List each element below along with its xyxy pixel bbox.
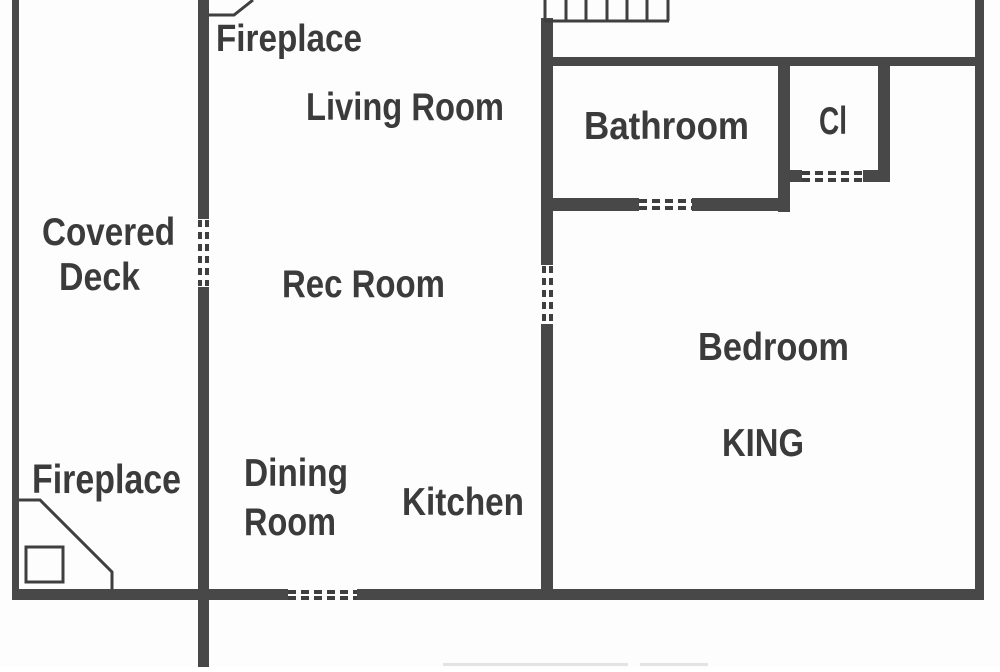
- svg-text:Bathroom: Bathroom: [584, 105, 749, 148]
- svg-text:Fireplace: Fireplace: [216, 18, 362, 60]
- svg-text:Cl: Cl: [819, 100, 847, 143]
- svg-text:Fireplace: Fireplace: [32, 456, 181, 502]
- svg-text:Dining: Dining: [244, 452, 348, 495]
- svg-text:KING: KING: [722, 422, 804, 465]
- svg-text:Covered: Covered: [42, 211, 175, 254]
- svg-text:Kitchen: Kitchen: [402, 481, 524, 524]
- svg-text:Rec Room: Rec Room: [282, 263, 445, 306]
- svg-text:Bedroom: Bedroom: [698, 326, 849, 369]
- svg-text:Living Room: Living Room: [306, 86, 504, 129]
- svg-text:Room: Room: [244, 501, 336, 544]
- svg-text:Deck: Deck: [59, 256, 140, 299]
